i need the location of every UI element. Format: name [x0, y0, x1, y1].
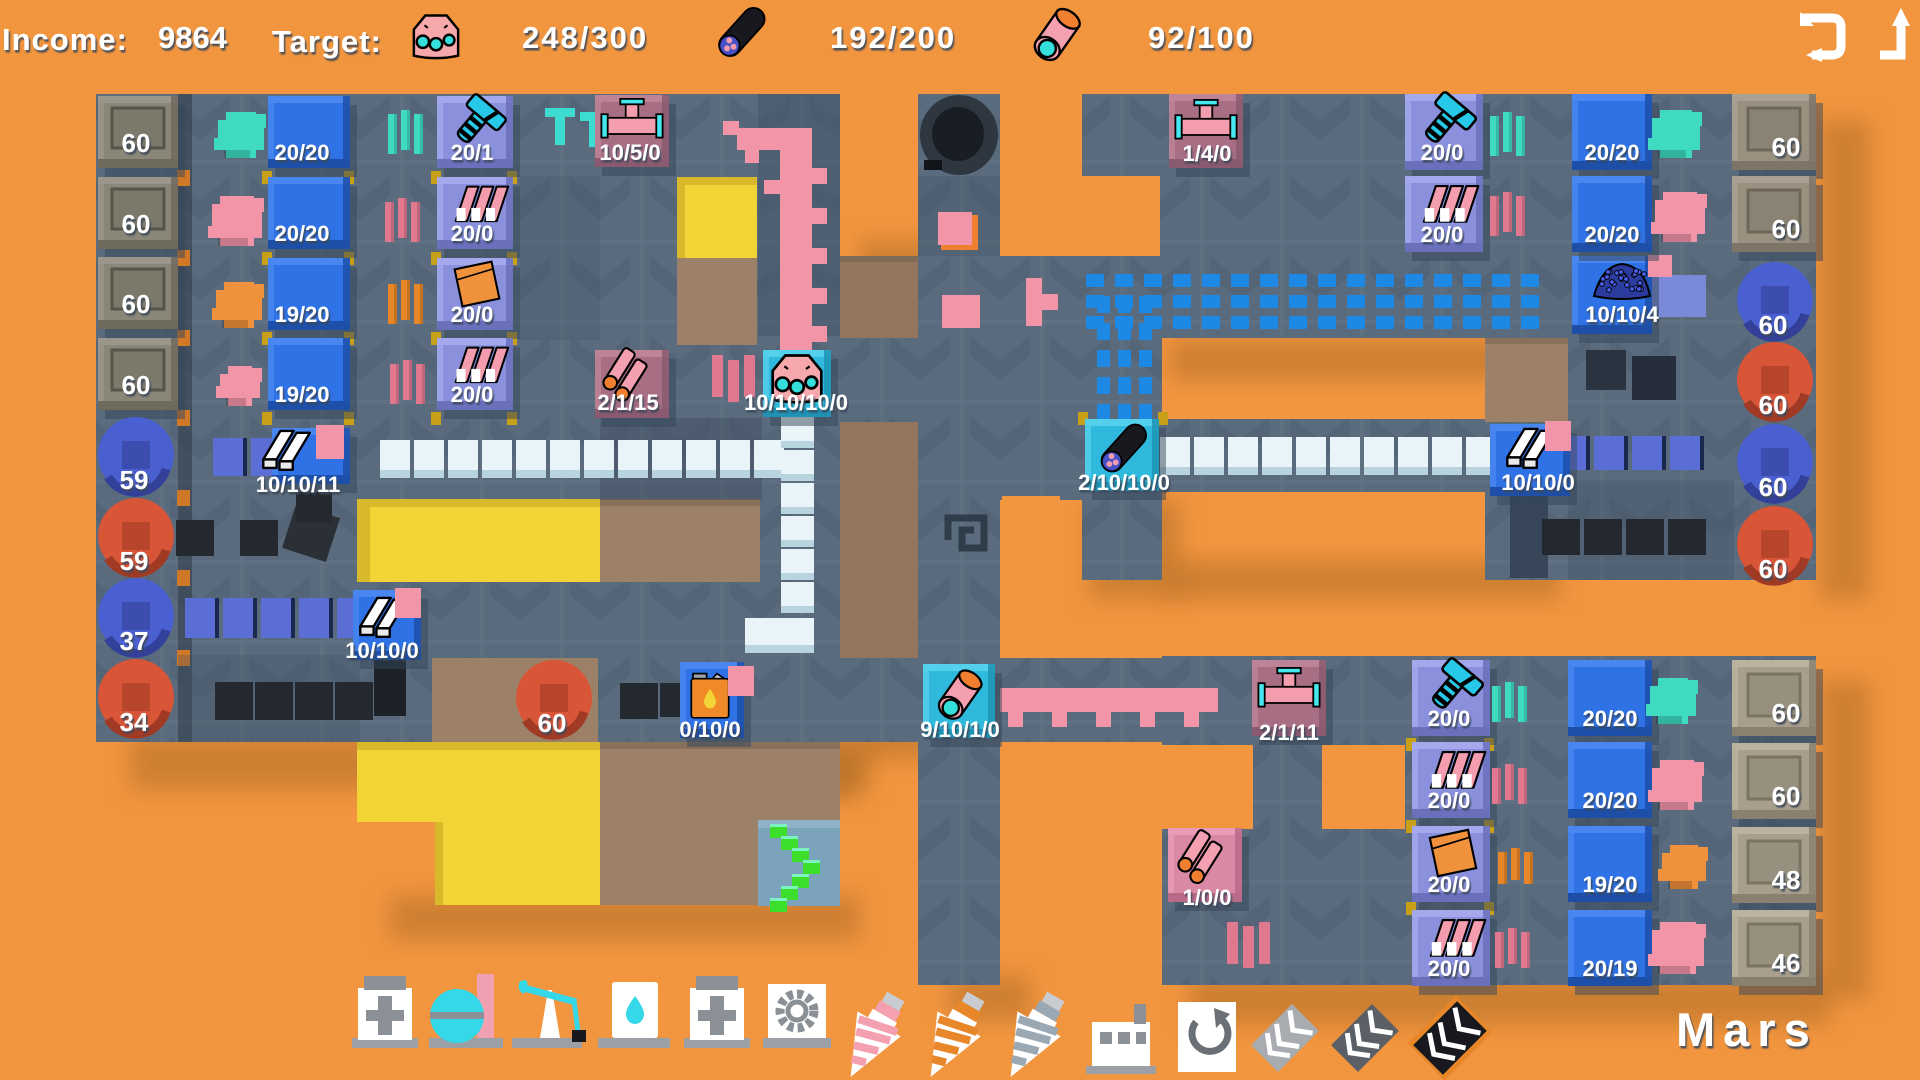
svg-text:20/20: 20/20 [1582, 706, 1637, 731]
svg-text:92/100: 92/100 [1148, 20, 1255, 55]
svg-text:20/20: 20/20 [1582, 788, 1637, 813]
svg-text:Income:: Income: [2, 22, 128, 57]
svg-text:10/10/0: 10/10/0 [1501, 470, 1574, 495]
svg-text:60: 60 [1759, 472, 1788, 502]
svg-text:20/20: 20/20 [1584, 140, 1639, 165]
svg-text:10/10/10/0: 10/10/10/0 [744, 390, 848, 415]
svg-text:60: 60 [1759, 554, 1788, 584]
svg-text:20/20: 20/20 [1584, 222, 1639, 247]
svg-text:Mars: Mars [1676, 1003, 1818, 1056]
svg-text:192/200: 192/200 [830, 20, 956, 55]
svg-text:20/0: 20/0 [1428, 956, 1471, 981]
svg-text:60: 60 [538, 708, 567, 738]
svg-text:48: 48 [1772, 865, 1801, 895]
svg-text:10/5/0: 10/5/0 [599, 140, 660, 165]
svg-text:10/10/4: 10/10/4 [1585, 302, 1659, 327]
svg-text:20/19: 20/19 [1582, 956, 1637, 981]
svg-text:60: 60 [122, 209, 151, 239]
svg-text:20/0: 20/0 [1428, 706, 1471, 731]
svg-text:1/0/0: 1/0/0 [1183, 885, 1232, 910]
svg-text:20/0: 20/0 [451, 221, 494, 246]
svg-text:19/20: 19/20 [274, 382, 329, 407]
svg-text:2/1/15: 2/1/15 [597, 390, 658, 415]
svg-text:1/4/0: 1/4/0 [1183, 141, 1232, 166]
svg-text:19/20: 19/20 [1582, 872, 1637, 897]
svg-text:34: 34 [120, 707, 149, 737]
svg-text:2/1/11: 2/1/11 [1259, 720, 1319, 745]
svg-text:248/300: 248/300 [522, 20, 648, 55]
svg-text:2/10/10/0: 2/10/10/0 [1078, 470, 1170, 495]
svg-text:10/10/0: 10/10/0 [345, 638, 418, 663]
svg-text:20/0: 20/0 [1428, 872, 1471, 897]
svg-text:20/0: 20/0 [451, 382, 494, 407]
svg-text:20/1: 20/1 [451, 140, 494, 165]
svg-text:10/10/11: 10/10/11 [256, 472, 340, 497]
svg-text:59: 59 [120, 546, 149, 576]
svg-text:0/10/0: 0/10/0 [679, 717, 740, 742]
svg-text:60: 60 [122, 370, 151, 400]
svg-text:9864: 9864 [158, 20, 228, 55]
svg-text:60: 60 [122, 128, 151, 158]
svg-text:20/0: 20/0 [1421, 140, 1464, 165]
svg-text:20/20: 20/20 [274, 140, 329, 165]
svg-text:59: 59 [120, 465, 149, 495]
svg-text:60: 60 [122, 289, 151, 319]
svg-text:20/20: 20/20 [274, 221, 329, 246]
svg-text:20/0: 20/0 [1421, 222, 1464, 247]
svg-text:Target:: Target: [272, 24, 382, 59]
svg-text:60: 60 [1772, 781, 1801, 811]
svg-text:20/0: 20/0 [1428, 788, 1471, 813]
svg-text:20/0: 20/0 [451, 302, 494, 327]
svg-text:60: 60 [1772, 132, 1801, 162]
svg-text:60: 60 [1759, 310, 1788, 340]
svg-text:46: 46 [1772, 948, 1801, 978]
svg-text:9/10/1/0: 9/10/1/0 [920, 717, 1000, 742]
svg-text:37: 37 [120, 626, 149, 656]
svg-text:19/20: 19/20 [274, 302, 329, 327]
svg-text:60: 60 [1759, 390, 1788, 420]
svg-text:60: 60 [1772, 214, 1801, 244]
svg-text:60: 60 [1772, 698, 1801, 728]
